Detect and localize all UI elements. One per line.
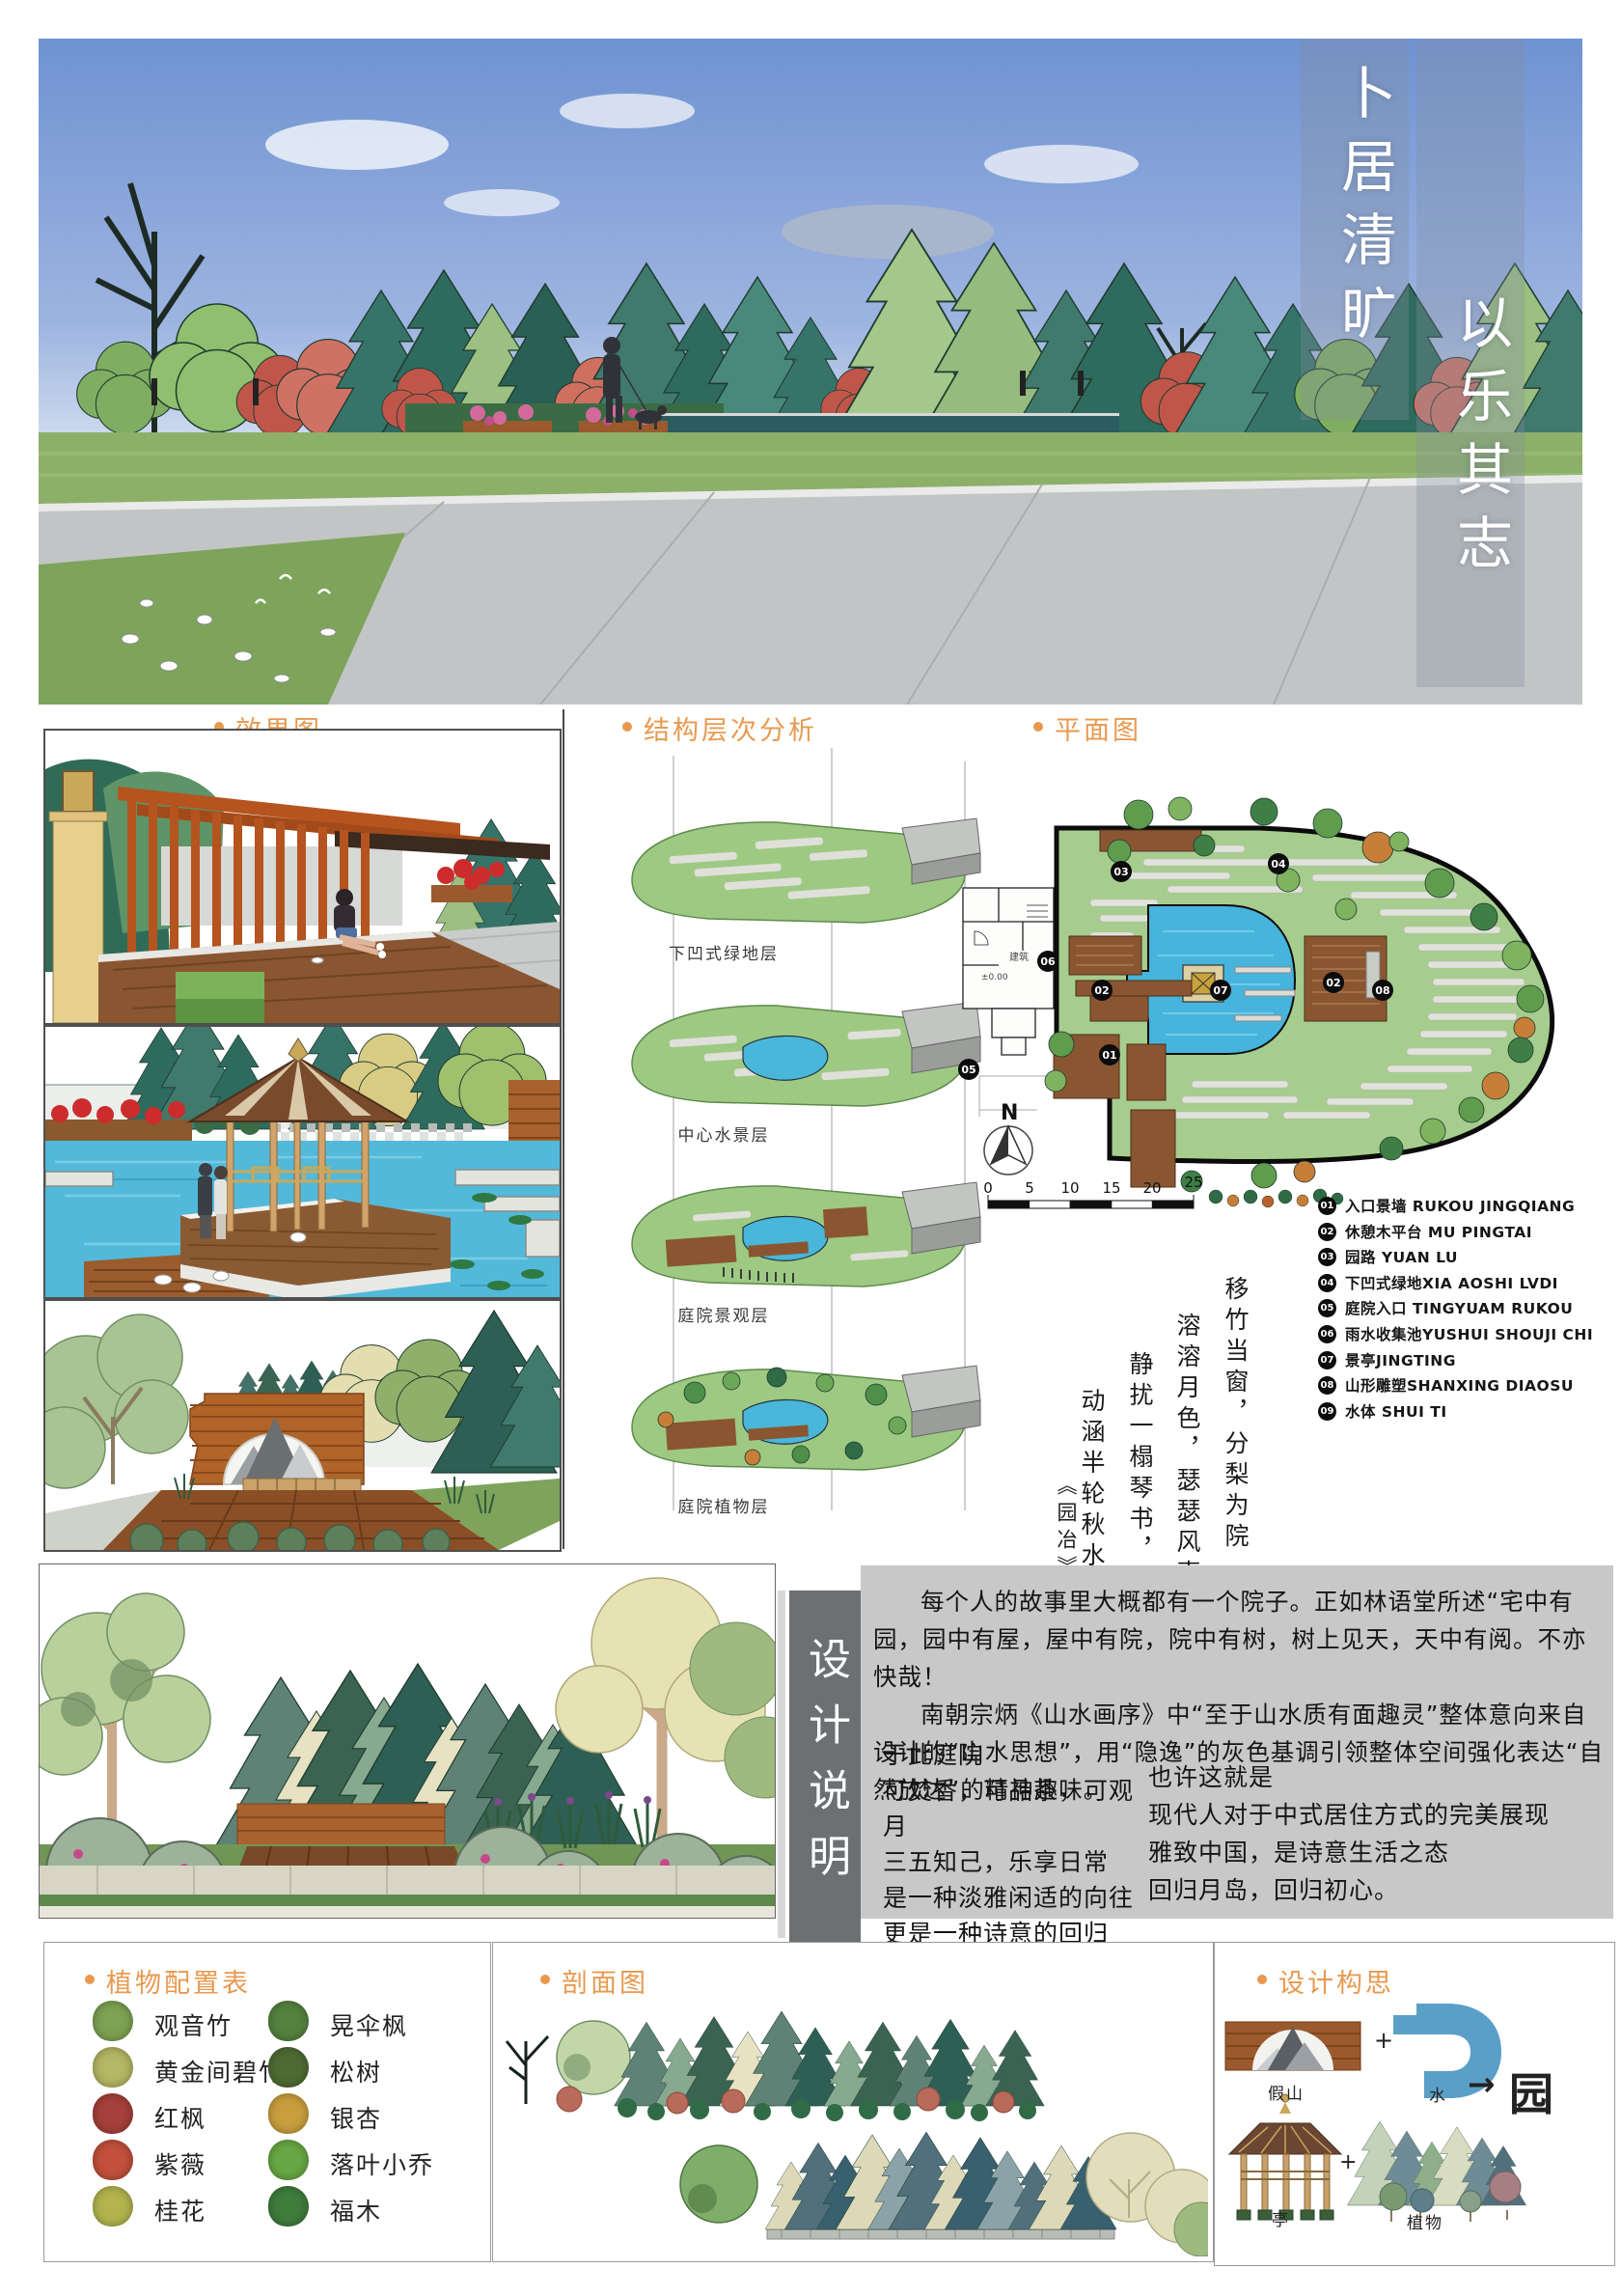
legend-item: 01入口景墙 RUKOU JINGQIANG (1318, 1195, 1575, 1216)
plan-marker: 05 (958, 1059, 979, 1080)
poem-line: 移竹当窗，分梨为院 (1218, 1276, 1252, 1565)
legend-item: 05庭院入口 TINGYUAM RUKOU (1318, 1297, 1573, 1318)
notes-paragraph-1: 每个人的故事里大概都有一个院子。正如林语堂所述“宅中有园，园中有屋，屋中有院，院… (873, 1583, 1605, 1696)
scale-tick: 0 (976, 1179, 1000, 1197)
plant-icon (268, 2093, 309, 2134)
scale-tick: 25 (1182, 1174, 1205, 1191)
plan-marker: 06 (1037, 951, 1058, 972)
concept-plus-2: + (1339, 2150, 1357, 2174)
north-label: N (1001, 1101, 1018, 1125)
plants-header: 植物配置表 (106, 1962, 251, 2000)
legend-num-icon: 05 (1318, 1299, 1336, 1317)
concept-arrow-icon: → (1468, 2065, 1496, 2104)
effect-image-moon-wall (43, 1299, 562, 1552)
concept-label-pavilion: 亭 (1272, 2206, 1290, 2230)
section-drawing-a (502, 2007, 1052, 2125)
design-notes-title: 设计说明 (794, 1637, 856, 1899)
plant-icon (268, 2186, 309, 2227)
plan-marker: 02 (1323, 972, 1344, 993)
plant-icon (268, 2140, 309, 2180)
poster-title-sub: 以乐其志 (1440, 293, 1521, 587)
plant-icon (93, 2186, 133, 2227)
plan-bullet-icon (1033, 722, 1043, 732)
plant-icon (93, 2093, 133, 2134)
plant-icon (268, 2047, 309, 2088)
legend-num-icon: 04 (1318, 1274, 1336, 1292)
layer-label-plants: 庭院植物层 (579, 1493, 868, 1517)
legend-item: 09水体 SHUI TI (1318, 1400, 1447, 1422)
poster-page: 卜居清旷 以乐其志 效果图 结构层次分析 平面图 (0, 0, 1621, 2296)
concept-label-rock: 假山 (1257, 2080, 1315, 2104)
legend-item: 08山形雕塑SHANXING DIAOSU (1318, 1374, 1574, 1396)
scale-tick: 5 (1018, 1179, 1041, 1197)
layer-label-courtyard: 庭院景观层 (579, 1302, 868, 1326)
scale-tick: 10 (1058, 1179, 1082, 1197)
section-drawing-b (675, 2121, 1208, 2260)
layer-label-water: 中心水景层 (579, 1121, 868, 1146)
plan-marker: 03 (1111, 861, 1132, 882)
plan-level-label: ±0.00 (981, 973, 1008, 982)
structure-bullet-icon (622, 722, 632, 732)
effect-image-pavilion (43, 1025, 562, 1299)
concept-label-plants: 植物 (1407, 2209, 1443, 2233)
plan-header: 平面图 (1055, 709, 1141, 747)
plan-marker: 01 (1099, 1044, 1120, 1065)
concept-label-garden: 园 (1509, 2060, 1553, 2123)
plan-building-label: 建筑 (1009, 951, 1029, 963)
legend-num-icon: 08 (1318, 1376, 1336, 1395)
legend-item: 06雨水收集池YUSHUI SHOUJI CHI (1318, 1323, 1593, 1344)
concept-label-water: 水 (1429, 2082, 1447, 2106)
scale-tick: 20 (1140, 1179, 1164, 1197)
poster-title-main: 卜居清旷 (1324, 64, 1405, 357)
section-header: 剖面图 (562, 1962, 648, 2000)
legend-num-icon: 07 (1318, 1351, 1336, 1369)
design-notes-title-bar: 设计说明 (789, 1591, 861, 1942)
plant-icon (93, 2140, 133, 2180)
legend-item: 04下凹式绿地XIA AOSHI LVDI (1318, 1272, 1558, 1293)
legend-item: 02休憩木平台 MU PINGTAI (1318, 1221, 1532, 1242)
section-bullet-icon (540, 1975, 550, 1984)
scale-tick: 15 (1100, 1179, 1123, 1197)
plan-marker: 04 (1268, 853, 1289, 874)
notes-column-left: 于此庭院 可焚香，可品茶，可观月 三五知己，乐享日常 是一种淡雅闲适的向往 更是… (883, 1737, 1153, 1951)
plant-icon (93, 2001, 133, 2041)
legend-num-icon: 02 (1318, 1223, 1336, 1241)
plant-icon (93, 2047, 133, 2088)
legend-item: 03园路 YUAN LU (1318, 1246, 1458, 1267)
plan-marker: 02 (1091, 980, 1113, 1001)
notes-accent-stripe (778, 1591, 785, 1938)
legend-num-icon: 06 (1318, 1325, 1336, 1343)
legend-num-icon: 03 (1318, 1248, 1336, 1266)
legend-item: 07景亭JINGTING (1318, 1349, 1456, 1370)
mid-divider-line (563, 709, 564, 1549)
legend-num-icon: 01 (1318, 1197, 1336, 1215)
elevation-render (39, 1563, 776, 1919)
plan-marker: 08 (1372, 980, 1393, 1001)
plants-bullet-icon (85, 1975, 95, 1984)
effect-image-pergola (43, 729, 562, 1025)
concept-plus-1: + (1374, 2027, 1393, 2054)
notes-column-right: 也许这就是 现代人对于中式居住方式的完美展现 雅致中国，是诗意生活之态 回归月岛… (1148, 1758, 1611, 1909)
poem-line: 溶溶月色，瑟瑟风声 (1169, 1313, 1204, 1602)
layer-label-sunken-green: 下凹式绿地层 (579, 940, 868, 964)
plan-marker: 07 (1210, 980, 1231, 1001)
legend-num-icon: 09 (1318, 1402, 1336, 1421)
plant-icon (268, 2001, 309, 2041)
